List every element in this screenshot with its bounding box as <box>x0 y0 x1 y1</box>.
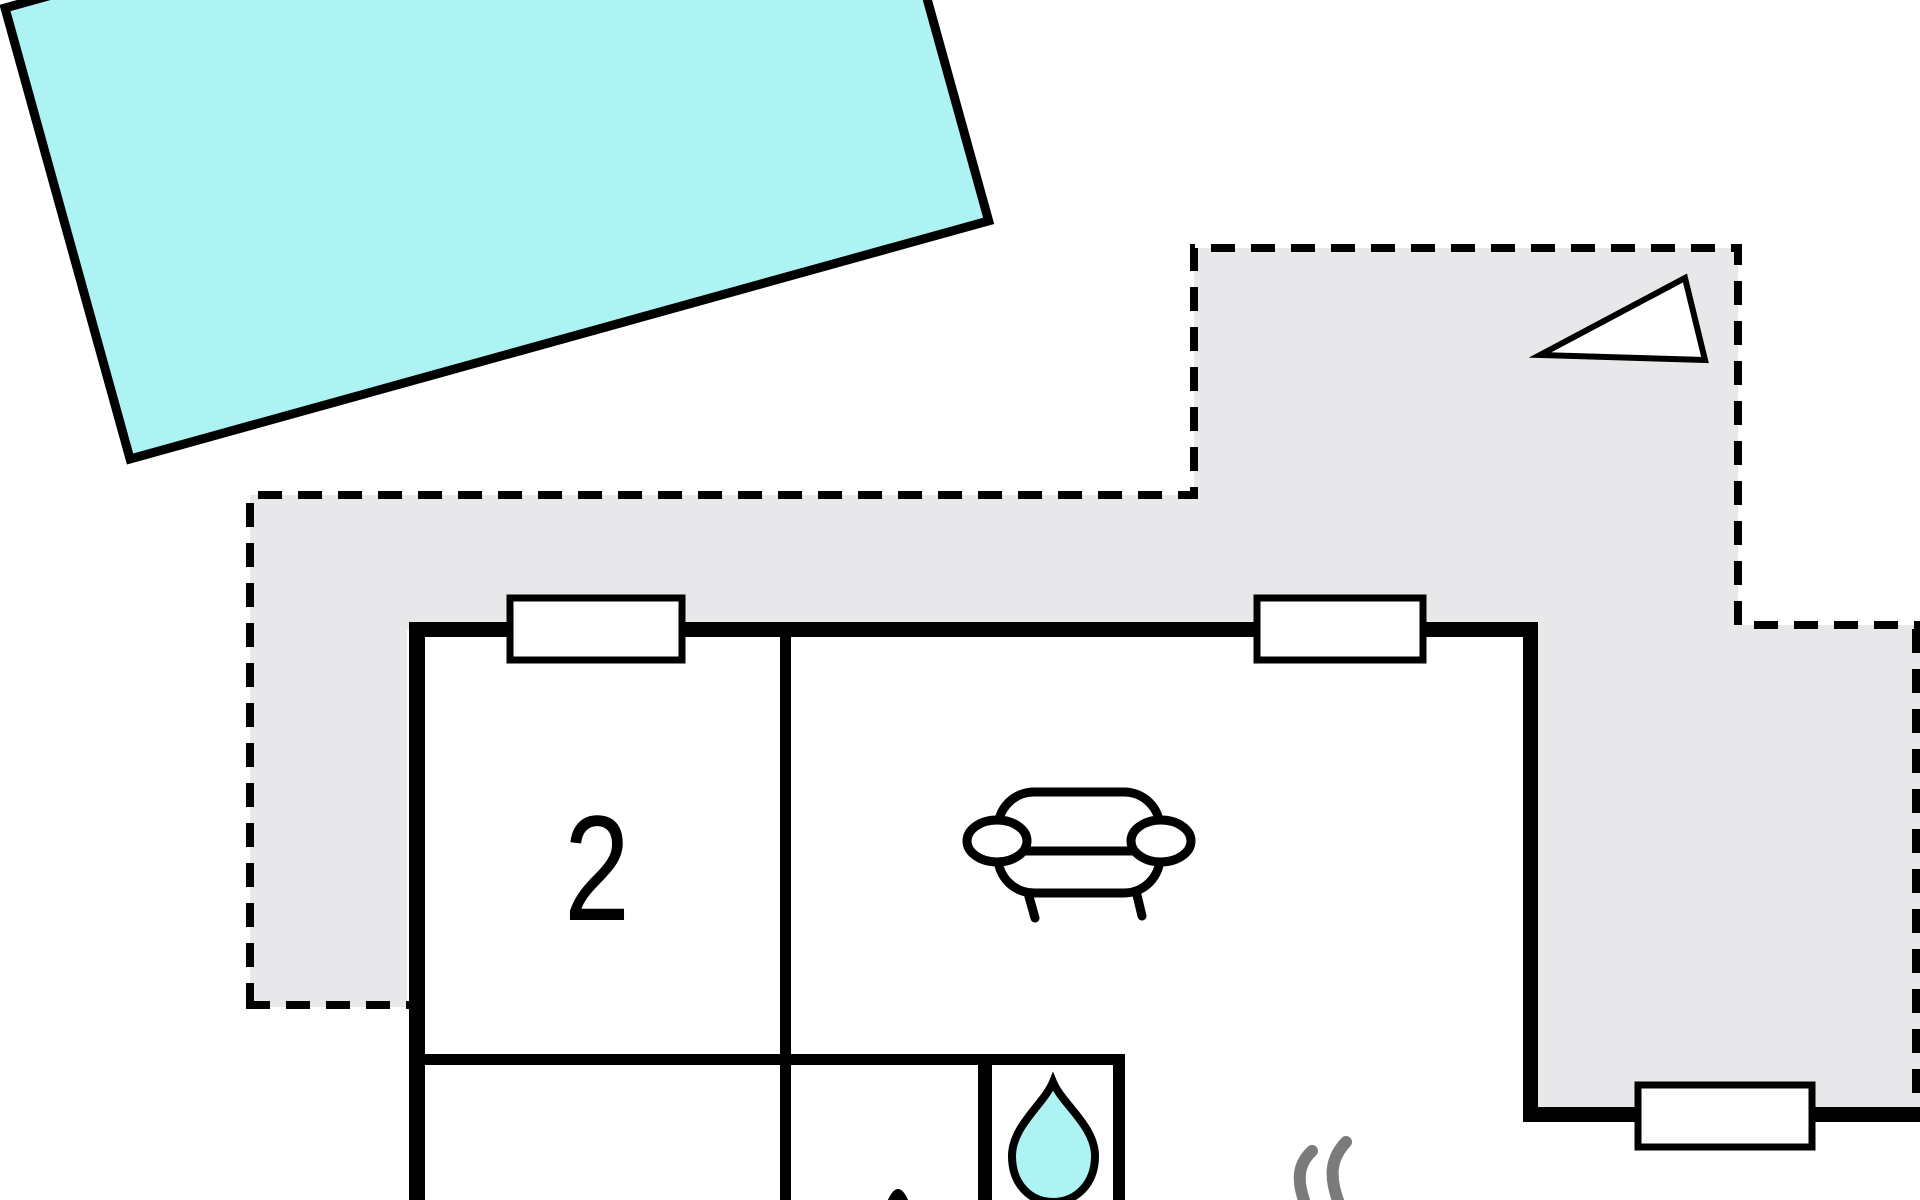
pool <box>5 0 989 459</box>
floor-plan-drawing: 2 <box>0 0 1920 1200</box>
window-symbol-bottom-right <box>1638 1085 1812 1147</box>
window-symbol-living <box>1257 598 1423 660</box>
room-label-2: 2 <box>564 784 630 952</box>
water-drop-icon <box>1012 1082 1095 1200</box>
wall-right <box>1523 622 1538 1120</box>
sofa-icon <box>967 792 1191 918</box>
fixture-tip-icon <box>887 1189 909 1200</box>
wall-interior-horizontal <box>425 1054 1125 1065</box>
heat-marks-icon <box>1300 1142 1346 1200</box>
window-symbol-room2 <box>510 598 682 660</box>
wall-bathroom-right <box>1113 1054 1125 1200</box>
terrace-area <box>250 248 1920 1115</box>
wall-bathroom-left <box>978 1054 992 1200</box>
wall-left <box>409 622 425 1200</box>
wall-interior-vertical-room2 <box>780 637 791 1200</box>
floor-plan-canvas: 2 <box>0 0 1920 1200</box>
